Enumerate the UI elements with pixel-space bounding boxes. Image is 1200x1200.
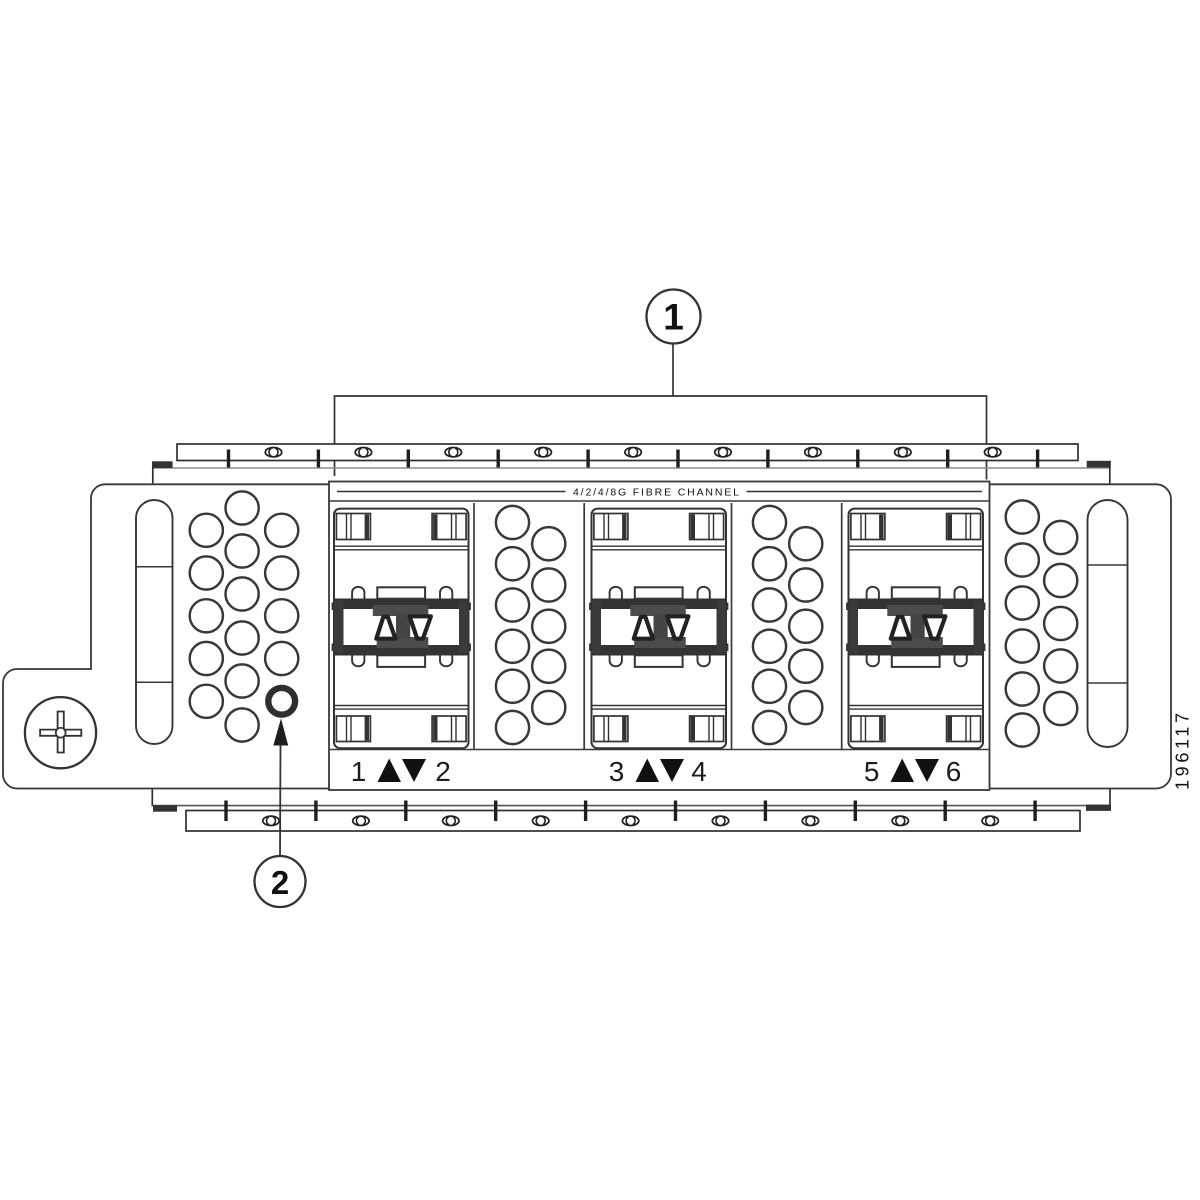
svg-text:5: 5 (864, 756, 880, 787)
svg-text:6: 6 (946, 756, 962, 787)
svg-text:4: 4 (691, 756, 707, 787)
svg-text:3: 3 (609, 756, 625, 787)
svg-text:2: 2 (271, 864, 289, 901)
svg-text:2: 2 (435, 756, 451, 787)
svg-text:4/2/4/8G FIBRE CHANNEL: 4/2/4/8G FIBRE CHANNEL (573, 487, 739, 499)
svg-text:1: 1 (663, 297, 684, 338)
svg-text:1: 1 (351, 756, 367, 787)
